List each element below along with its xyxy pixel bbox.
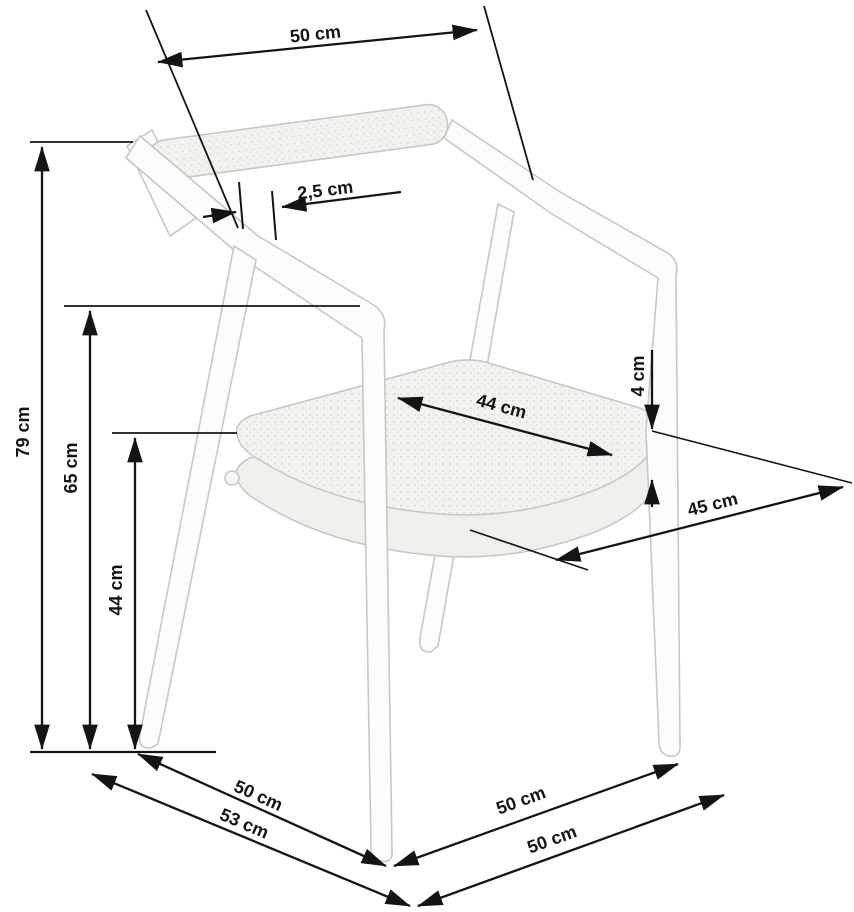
dim-seat-height-label: 44 cm	[106, 564, 126, 615]
dim-frame-thickness-tick-right	[272, 191, 276, 240]
dim-seat-depth-ext-right	[652, 431, 852, 483]
chair-dimension-diagram: 50 cm 2,5 cm 79 cm 65 cm 44 cm	[0, 0, 854, 912]
diagram-canvas: 50 cm 2,5 cm 79 cm 65 cm 44 cm	[0, 0, 854, 912]
dim-side-depth-inner: 50 cm	[138, 754, 386, 866]
dim-armrest-height-label: 65 cm	[61, 442, 81, 493]
back-left-leg	[139, 246, 256, 748]
backrest-pad	[145, 102, 450, 182]
dim-total-height-label: 79 cm	[13, 406, 33, 457]
seat-screw	[225, 471, 239, 485]
dim-cushion-thickness-label: 4 cm	[628, 355, 648, 396]
dim-side-depth-inner-arrow	[138, 754, 386, 866]
dim-front-width-total-label: 50 cm	[525, 821, 580, 857]
dim-front-width-total: 50 cm	[418, 795, 724, 906]
dim-front-width-total-arrow	[418, 795, 724, 906]
dim-backrest-width-label: 50 cm	[289, 21, 342, 46]
